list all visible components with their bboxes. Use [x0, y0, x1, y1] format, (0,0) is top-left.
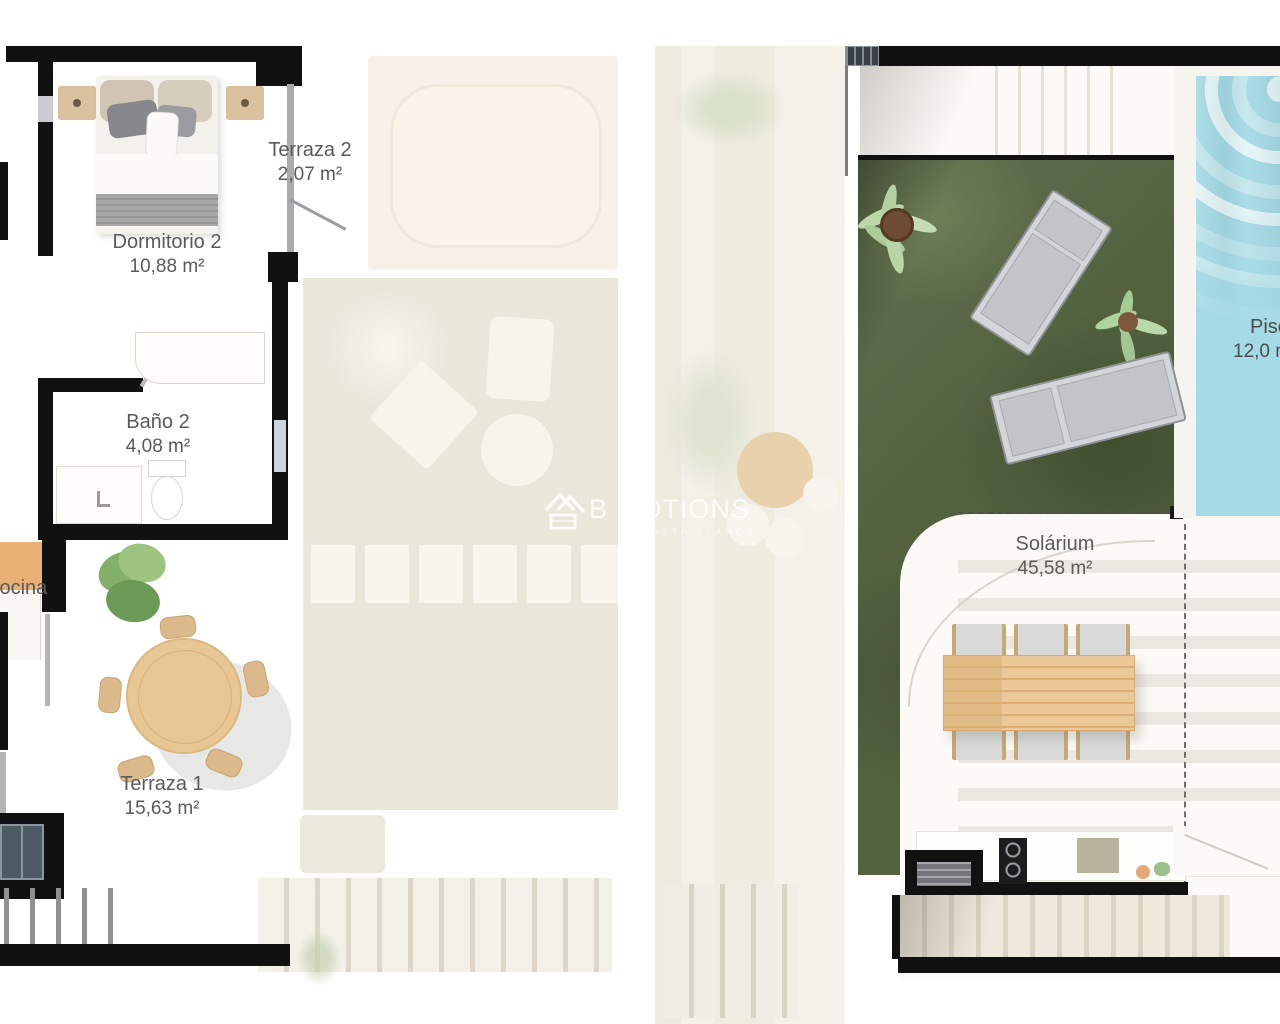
dining-chair — [1014, 624, 1068, 656]
bed — [96, 76, 218, 234]
plate-food — [1136, 865, 1150, 879]
neighbor-stair-plant — [296, 930, 342, 986]
stairs-left-wall — [892, 895, 900, 959]
neighbor-furniture-round — [481, 414, 553, 486]
watermark-text-right: MOTIONS — [617, 494, 750, 525]
table-ring — [138, 650, 232, 744]
skylight-top — [845, 46, 879, 66]
watermark-house-icon — [543, 484, 587, 536]
railing-post — [30, 888, 35, 946]
neighbor-landing — [300, 815, 385, 873]
railing-post — [4, 888, 9, 946]
room-label-solarium: Solárium 45,58 m² — [1000, 532, 1110, 581]
dining-chair — [1076, 728, 1130, 760]
cooktop — [999, 838, 1027, 884]
neighbor-window-2 — [365, 545, 409, 603]
skylight-divider — [21, 826, 23, 878]
wall-bottom — [0, 944, 290, 966]
room-label-bano2: Baño 2 4,08 m² — [98, 410, 218, 459]
dining-chair — [952, 728, 1006, 760]
terrace-chair — [159, 614, 197, 640]
lamp-icon — [241, 99, 249, 107]
terrace-plant — [92, 542, 172, 630]
neighbor-car — [390, 84, 602, 248]
lamp-icon — [73, 99, 81, 107]
dining-chair — [1076, 624, 1130, 656]
neighbor-interior — [303, 278, 618, 810]
watermark-subtitle: COSTA BLANCA — [640, 527, 756, 537]
counter-edge — [1184, 834, 1268, 870]
toilet-bowl — [151, 476, 183, 520]
neighbor-window-5 — [527, 545, 571, 603]
wall-top-corner — [256, 46, 302, 86]
watermark: B MOTIONS COSTA BLANCA — [543, 484, 803, 544]
wall-bath-left — [38, 390, 53, 538]
dining-chair — [952, 624, 1006, 656]
terrace-chair — [97, 676, 122, 714]
neighbor-car-area — [368, 56, 618, 270]
unit-left-edge — [845, 66, 848, 176]
neighbor-furniture-square — [485, 316, 555, 402]
skylight-panel — [0, 824, 44, 880]
stair-shadow — [900, 895, 1060, 959]
plate-greens — [1154, 862, 1170, 876]
kitchen-door — [45, 614, 50, 706]
shower-glass — [274, 420, 286, 472]
neighbor-plant-top — [675, 71, 785, 146]
wall-left-edge-upper — [0, 162, 8, 240]
bottom-staircase — [900, 895, 1230, 959]
railing-post — [108, 888, 113, 946]
terrace2-rail — [289, 198, 347, 231]
railing-post — [56, 888, 61, 946]
railing-post — [82, 888, 87, 946]
toilet-tank — [148, 460, 186, 477]
cutting-board — [1077, 838, 1119, 873]
palm-plant-1 — [852, 176, 938, 272]
duvet — [96, 154, 218, 196]
pool-side-counter — [1173, 826, 1280, 876]
dining-chair — [1014, 728, 1068, 760]
room-label-terraza2: Terraza 2 2,07 m² — [250, 138, 370, 187]
palm-trunk — [880, 208, 914, 242]
room-label-dormitorio2: Dormitorio 2 10,88 m² — [92, 230, 242, 279]
wall-bath-bottom — [38, 524, 288, 540]
watermark-text-left: B — [589, 494, 608, 525]
palm-trunk — [1118, 312, 1138, 332]
faucet-icon — [97, 491, 110, 507]
wall-top-right-plan — [879, 46, 1280, 66]
railing-bottom-left — [4, 888, 122, 946]
accent-pillow — [145, 111, 179, 159]
dining-table — [943, 655, 1135, 731]
bedroom-window — [38, 96, 53, 122]
room-label-cocina: Cocina — [0, 576, 65, 601]
outdoor-kitchen-window — [917, 862, 971, 886]
nightstand-right — [226, 86, 264, 120]
neighbor-stairs — [663, 884, 798, 1018]
neighbor-window-6 — [581, 545, 618, 603]
pool — [1196, 76, 1280, 516]
lounger-pad — [999, 388, 1065, 456]
wall-bedroom-left — [38, 46, 53, 256]
wall-bottom-right-plan — [898, 957, 1280, 973]
neighbor-window-1 — [311, 545, 355, 603]
nightstand-left — [58, 86, 96, 120]
room-label-piscina: Piscina 12,0 m² — [1250, 315, 1280, 364]
wall-left-edge-lower — [0, 612, 8, 750]
solarium-dashed-border — [958, 512, 1170, 514]
top-staircase — [860, 66, 1175, 160]
wall-bedroom-bottom — [38, 378, 143, 392]
floorplan-image: Terraza 2 2,07 m² Dormitorio 2 10,88 m² … — [0, 0, 1280, 1024]
stair-shadow — [860, 66, 1040, 160]
neighbor-window-3 — [419, 545, 463, 603]
room-label-terraza1: Terraza 1 15,63 m² — [92, 772, 232, 821]
round-table — [126, 638, 242, 754]
neighbor-chair — [803, 476, 839, 512]
neighbor-window-4 — [473, 545, 517, 603]
wall-right-vertical — [272, 262, 288, 540]
blanket — [96, 194, 218, 226]
wardrobe — [135, 332, 265, 384]
bathroom-sink — [56, 466, 142, 524]
